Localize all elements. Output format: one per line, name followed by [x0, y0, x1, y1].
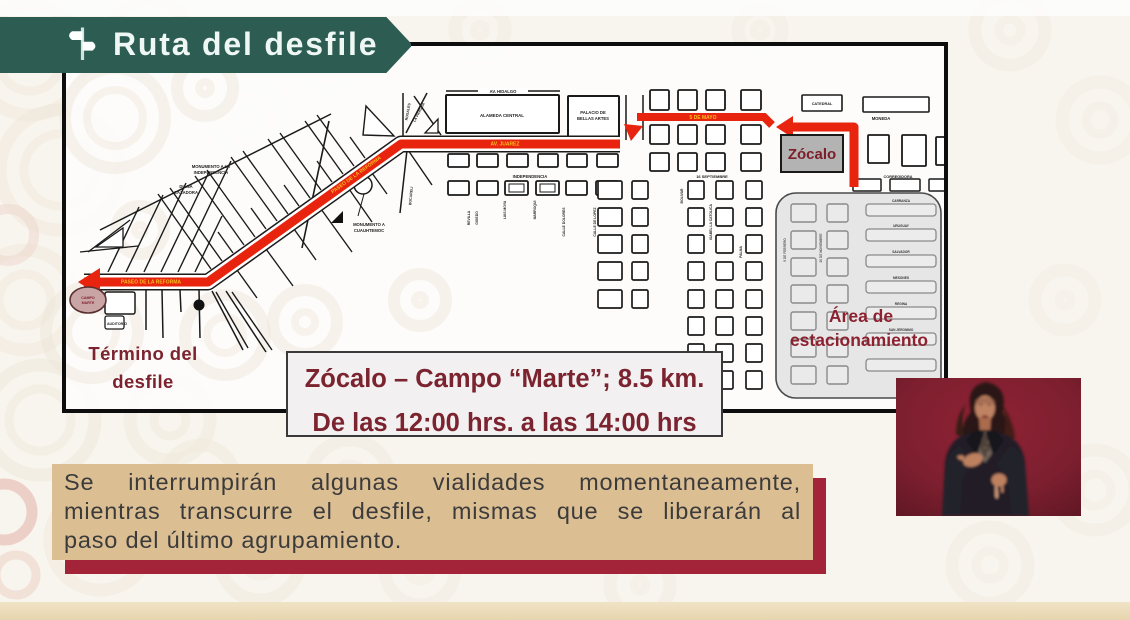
svg-text:LUIS MOYA: LUIS MOYA: [503, 200, 507, 219]
svg-text:MARROQUI: MARROQUI: [533, 201, 537, 220]
svg-text:AV. HIDALGO: AV. HIDALGO: [490, 89, 517, 94]
svg-text:URUGUAY: URUGUAY: [893, 224, 910, 228]
svg-text:ISABEL LA CATOLICA: ISABEL LA CATOLICA: [709, 204, 713, 240]
svg-text:CALLE DOLORES: CALLE DOLORES: [562, 207, 566, 237]
svg-text:MONUMENTO A: MONUMENTO A: [353, 222, 385, 227]
svg-text:GIGEDO: GIGEDO: [475, 211, 479, 225]
svg-text:DIANA: DIANA: [179, 184, 192, 189]
svg-text:BOLIVAR: BOLIVAR: [680, 188, 684, 204]
svg-text:20 DE NOVIEMBRE: 20 DE NOVIEMBRE: [819, 233, 823, 262]
svg-text:CAMPO: CAMPO: [81, 296, 95, 300]
svg-text:CALLE DE LOPEZ: CALLE DE LOPEZ: [593, 207, 597, 236]
svg-text:REGINA: REGINA: [895, 302, 908, 306]
svg-text:SALVADOR: SALVADOR: [892, 250, 910, 254]
svg-text:CUAUHTEMOC: CUAUHTEMOC: [354, 228, 384, 233]
svg-text:AV. JUAREZ: AV. JUAREZ: [491, 142, 520, 148]
svg-text:Término del: Término del: [88, 343, 197, 364]
svg-text:PASEO DE LA REFORMA: PASEO DE LA REFORMA: [121, 280, 181, 286]
svg-text:MONUMENTO A LA: MONUMENTO A LA: [192, 164, 230, 169]
svg-text:Zócalo: Zócalo: [788, 146, 836, 163]
svg-text:BELLAS ARTES: BELLAS ARTES: [577, 116, 609, 121]
svg-text:PALMA: PALMA: [739, 246, 743, 258]
svg-text:estacionamiento: estacionamiento: [790, 330, 928, 350]
svg-text:5 DE MAYO: 5 DE MAYO: [689, 115, 716, 121]
svg-text:5 DE FEBRERO: 5 DE FEBRERO: [783, 238, 787, 262]
svg-text:INDEPENDENCIA: INDEPENDENCIA: [513, 174, 548, 179]
svg-text:Área de: Área de: [829, 305, 893, 326]
svg-text:16 SEPTIEMBRE: 16 SEPTIEMBRE: [696, 174, 728, 179]
svg-text:MONEDA: MONEDA: [872, 116, 891, 121]
svg-text:CARRANZA: CARRANZA: [892, 199, 911, 203]
svg-text:INDEPENDENCIA: INDEPENDENCIA: [194, 170, 229, 175]
svg-text:desfile: desfile: [112, 371, 173, 392]
svg-text:AUDITORIO: AUDITORIO: [107, 322, 127, 326]
svg-text:CATEDRAL: CATEDRAL: [812, 102, 833, 106]
svg-text:MESONES: MESONES: [893, 276, 909, 280]
svg-text:PALACIO DE: PALACIO DE: [580, 110, 606, 115]
svg-text:MARTE: MARTE: [82, 301, 95, 305]
svg-text:REVILLA: REVILLA: [467, 210, 471, 225]
svg-text:ALAMEDA CENTRAL: ALAMEDA CENTRAL: [480, 113, 524, 118]
svg-text:CAZADORA: CAZADORA: [174, 190, 198, 195]
